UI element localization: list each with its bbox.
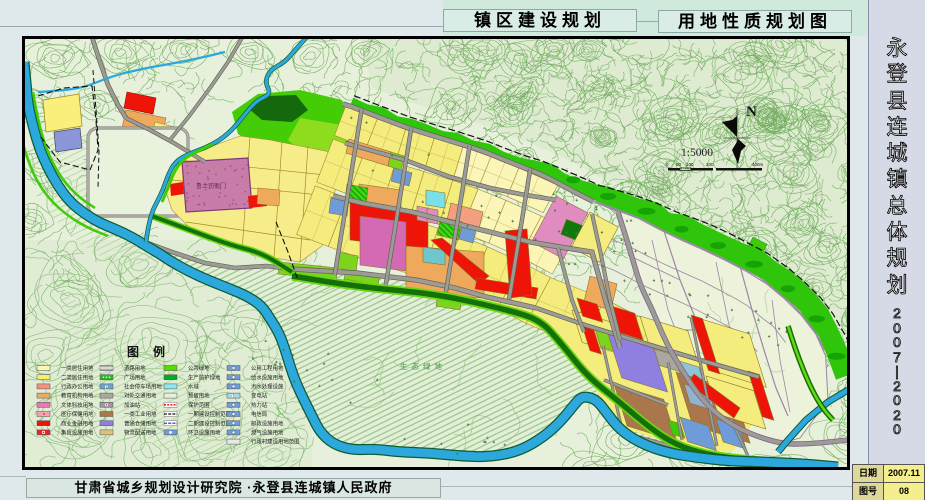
svg-text:给水设施用地: 给水设施用地 [251,373,284,381]
svg-text:100: 100 [686,162,694,167]
svg-text:图例: 图例 [127,344,179,359]
svg-text:污水处理设施: 污水处理设施 [251,383,284,391]
svg-text:热力站: 热力站 [251,401,268,409]
svg-text:一类居住用地: 一类居住用地 [61,364,94,372]
svg-text:集贸设施用地: 集贸设施用地 [61,429,94,437]
svg-text:生态绿地: 生态绿地 [400,361,446,371]
svg-text:邮政设施用地: 邮政设施用地 [251,419,284,427]
svg-text:加油站: 加油站 [124,401,141,409]
svg-text:P: P [105,384,108,389]
svg-text:1:5000: 1:5000 [681,147,713,159]
svg-text:二类居住用地: 二类居住用地 [61,373,94,381]
svg-text:行政村建设用地范围: 行政村建设用地范围 [251,438,300,446]
svg-text:医疗保健用地: 医疗保健用地 [61,410,94,418]
svg-text:N: N [746,104,757,120]
svg-text:普通仓储用地: 普通仓储用地 [124,419,157,427]
svg-text:商业金融用地: 商业金融用地 [61,419,94,427]
svg-text:二期建设控制范围: 二期建设控制范围 [188,419,231,427]
svg-text:200: 200 [706,162,714,167]
svg-text:社会停车场用地: 社会停车场用地 [124,383,162,391]
svg-text:电信局: 电信局 [251,410,267,418]
svg-text:400m: 400m [752,162,764,167]
svg-text:50: 50 [676,162,682,167]
svg-text:广场用地: 广场用地 [124,373,146,381]
svg-text:公共绿地: 公共绿地 [188,364,210,372]
svg-text:鲁土司衙门: 鲁土司衙门 [196,182,226,190]
svg-text:一类工业用地: 一类工业用地 [124,410,157,418]
svg-text:对外交通用地: 对外交通用地 [124,392,157,400]
svg-text:文体科技用地: 文体科技用地 [61,401,94,409]
svg-text:生产防护绿地: 生产防护绿地 [188,373,221,381]
svg-text:教育机构用地: 教育机构用地 [61,392,94,400]
svg-text:燃气设施用地: 燃气设施用地 [251,429,284,437]
svg-text:环卫设施用地: 环卫设施用地 [188,429,221,437]
svg-text:物流配送用地: 物流配送用地 [124,429,157,437]
svg-text:水域: 水域 [188,383,199,391]
svg-text:行政办公用地: 行政办公用地 [61,383,94,391]
svg-text:一期建设控制范围: 一期建设控制范围 [188,410,231,418]
svg-text:预留用地: 预留用地 [188,392,210,400]
svg-text:道路用地: 道路用地 [124,364,146,372]
svg-text:保护范围: 保护范围 [188,401,210,409]
svg-text:公用工程用地: 公用工程用地 [251,364,284,372]
svg-text:变电站: 变电站 [251,392,268,400]
